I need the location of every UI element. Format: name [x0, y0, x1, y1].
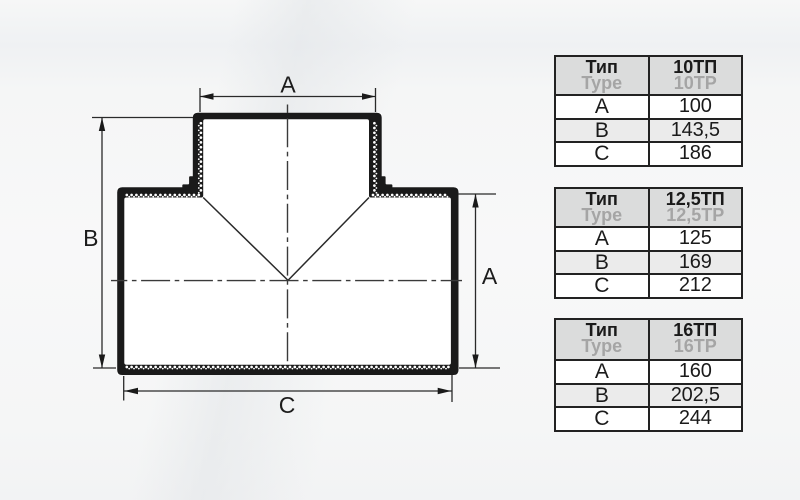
svg-text:A: A — [482, 263, 498, 289]
svg-text:B: B — [83, 225, 98, 251]
svg-text:C: C — [279, 392, 296, 418]
svg-text:A: A — [280, 72, 296, 98]
